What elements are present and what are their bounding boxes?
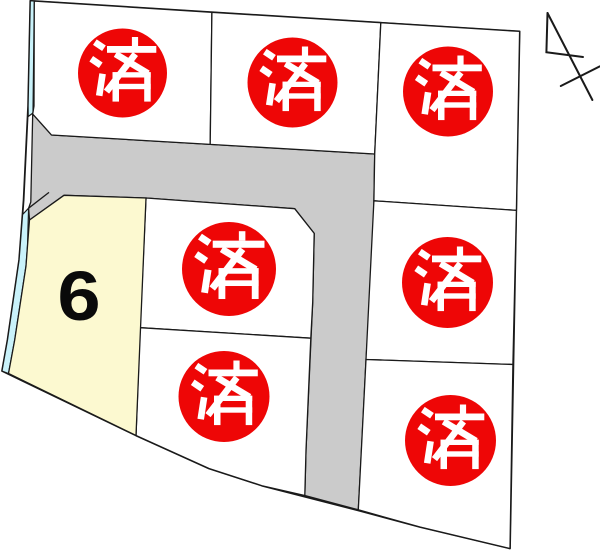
svg-text:6: 6 <box>57 257 100 335</box>
